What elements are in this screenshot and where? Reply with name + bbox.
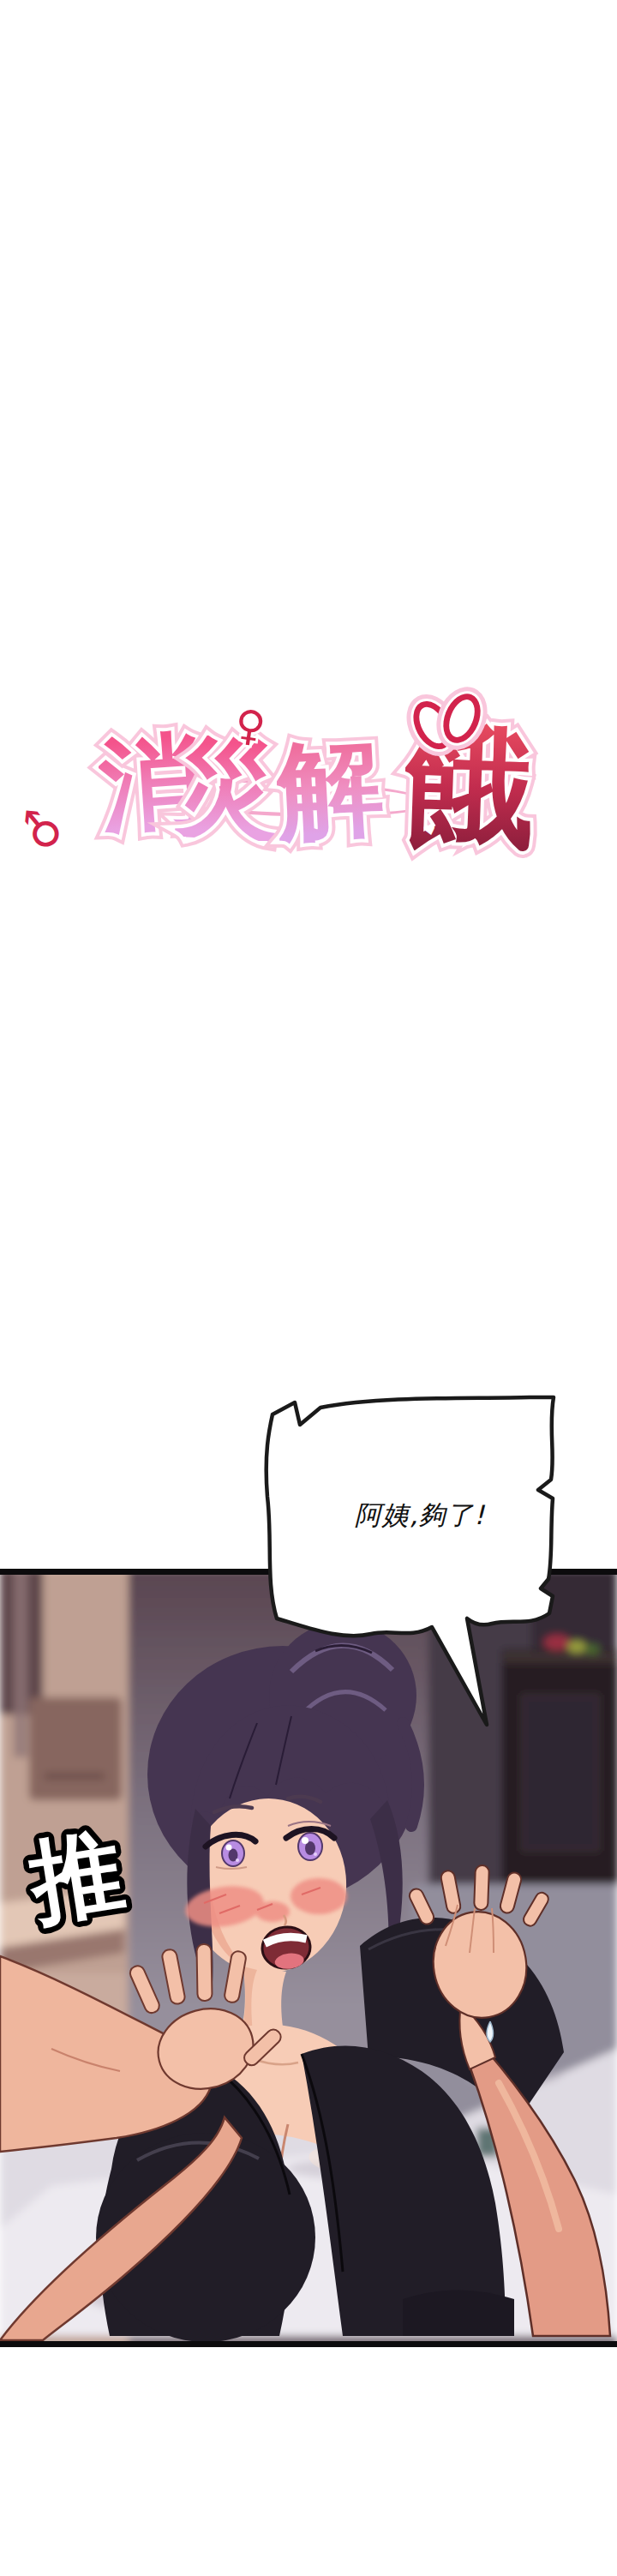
sfx-push-text: 推	[21, 1816, 131, 1937]
male-symbol-fill: ♂	[19, 805, 65, 856]
speech-bubble-text: 阿姨,夠了!	[326, 1498, 514, 1534]
speech-bubble	[255, 1385, 572, 1754]
title-logo: 消 消 消 災 災 災 解 解 解 餓 餓 餓 ♀ ♀ ♂ ♂ ♥	[60, 701, 566, 886]
speech-bubble-outline	[267, 1397, 554, 1725]
title-char-2-fill: 災	[175, 734, 283, 842]
title-char-3-fill: 解	[274, 734, 386, 845]
webtoon-page: 消 消 消 災 災 災 解 解 解 餓 餓 餓 ♀ ♀ ♂ ♂ ♥	[0, 0, 617, 2576]
panel-bottom-border	[0, 2341, 617, 2347]
female-symbol-fill: ♀	[232, 703, 267, 748]
